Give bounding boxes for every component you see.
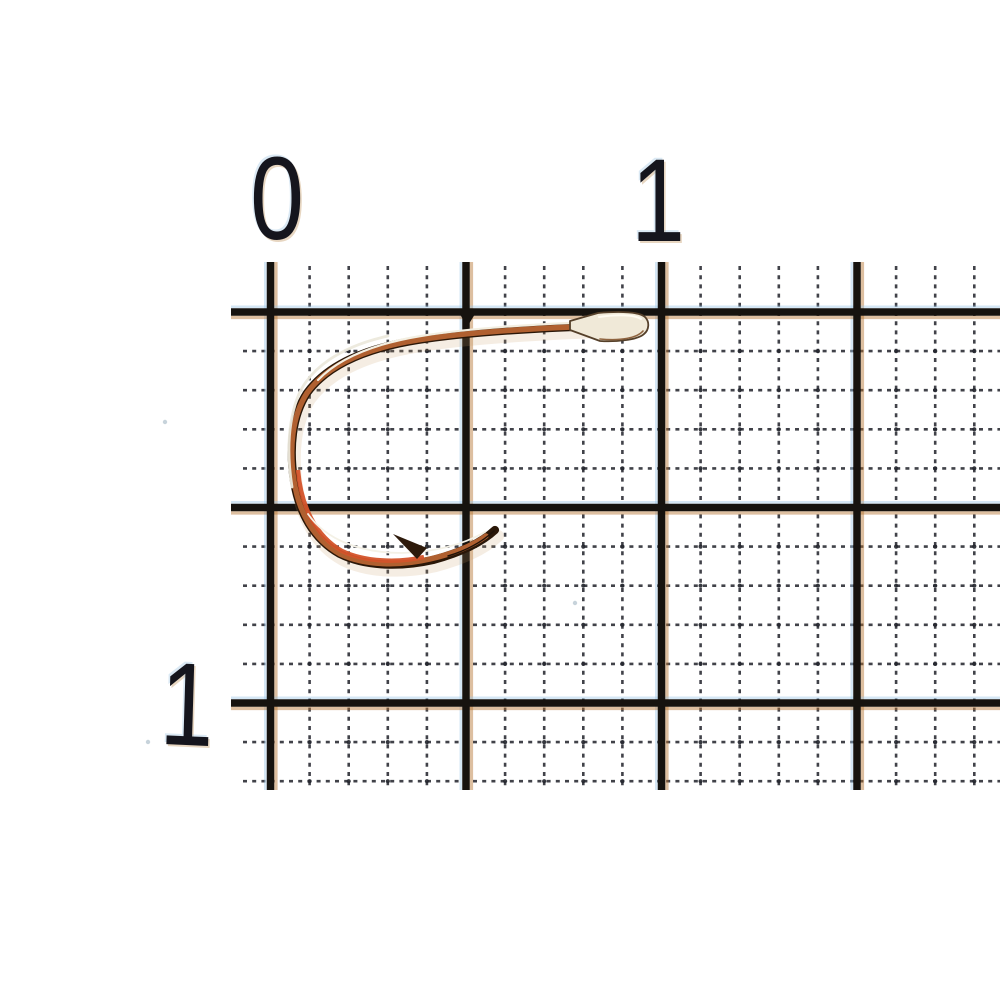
photo-stage: 0 1 1 [0, 0, 1000, 1000]
ruler-label-left-1: 1 [148, 644, 225, 765]
hook-bend-red [298, 470, 424, 561]
fishing-hook-photo [0, 0, 1000, 1000]
ruler-label-top-1: 1 [621, 142, 695, 260]
hook-strokes [289, 312, 648, 571]
ruler-label-top-0: 0 [240, 140, 314, 258]
hook-wire-base [292, 326, 596, 565]
